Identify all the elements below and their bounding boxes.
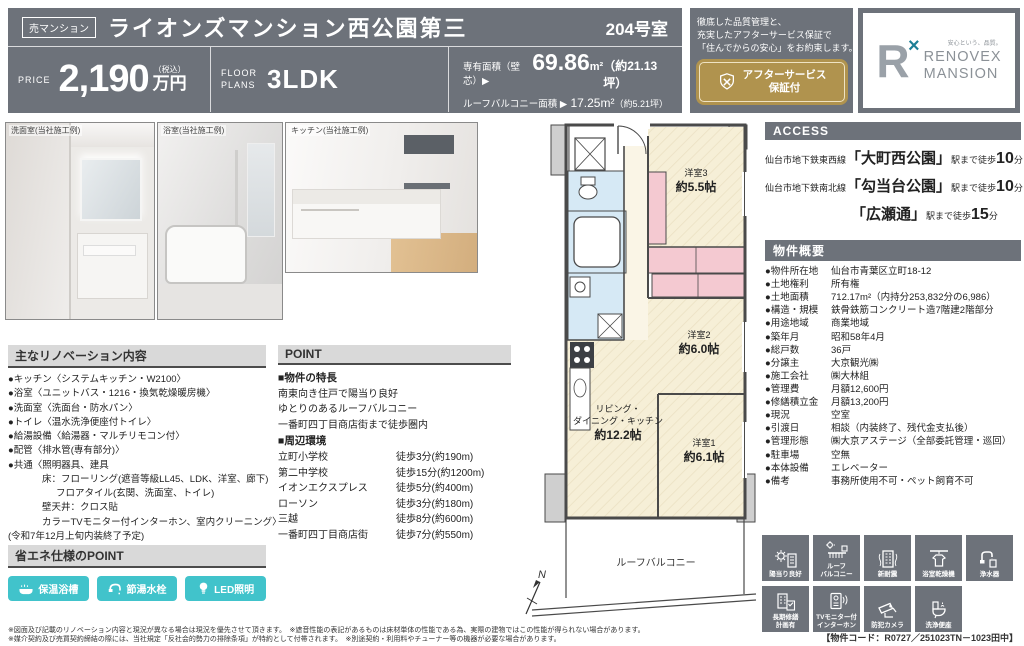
- overview-row: ●管理費月額12,600円: [765, 383, 1021, 396]
- bathroom-photo: 浴室(当社施工例): [157, 122, 283, 320]
- place-distance: 徒歩3分(約190m): [396, 450, 473, 466]
- faucet-icon: [108, 582, 123, 596]
- environment-row: 立町小学校徒歩3分(約190m): [278, 450, 511, 466]
- walk-minutes: 15: [971, 206, 989, 224]
- place-name: イオンエクスプレス: [278, 481, 396, 497]
- eco-section-header: 省エネ仕様のPOINT: [8, 545, 266, 568]
- washroom-photo: 洗面室(当社施工例): [5, 122, 155, 320]
- floor-plan: N 洋室3 約5.5帖 洋室2 約6.0帖 洋室1 約6.1帖 リビング・ ダイ…: [518, 116, 758, 624]
- place-distance: 徒歩7分(約550m): [396, 528, 473, 544]
- renovation-item: ●洗面室〈洗面台・防水パン〉: [8, 402, 266, 416]
- eco-badge-label: 節湯水栓: [127, 581, 167, 596]
- overview-row: ●土地面積712.17m²（内持分253,832分の6,986）: [765, 291, 1021, 304]
- renovation-item: 床：フローリング(遮音等級LL45、LDK、洋室、廊下): [8, 473, 266, 487]
- overview-row: ●引渡日相談（内装終了、残代金支払後）: [765, 422, 1021, 435]
- sale-type-badge: 売マンション: [22, 17, 96, 38]
- eco-badge-bathtub: 保温浴槽: [8, 576, 89, 601]
- plan-label-2: PLANS: [221, 80, 256, 90]
- area-value: 69.86: [532, 49, 590, 76]
- overview-section-header: 物件概要: [765, 240, 1021, 261]
- feature-tile-water-purifier: 浄水器: [966, 535, 1013, 581]
- feature-item: 一番町四丁目商店街まで徒歩圏内: [278, 418, 511, 434]
- point-list: ■物件の特長 南東向き住戸で陽当り良好 ゆとりのあるルーフバルコニー 一番町四丁…: [278, 365, 511, 543]
- area-tsubo: （約21.13坪）: [603, 57, 668, 91]
- feature-icons-grid: 陽当り良好 ルーフ バルコニー 新耐震: [762, 535, 1022, 637]
- header-title-row: 売マンション ライオンズマンション西公園第三 204号室: [8, 8, 682, 47]
- ldk-label-2: ダイニング・キッチン: [573, 415, 663, 426]
- point-section: POINT ■物件の特長 南東向き住戸で陽当り良好 ゆとりのあるルーフバルコニー…: [278, 345, 511, 543]
- renovation-item: ●共通〈照明器具、建具: [8, 459, 266, 473]
- access-line: 仙台市地下鉄南北線「勾当台公園」駅まで徒歩10分: [765, 175, 1021, 196]
- feature-tile-tv-intercom: TVモニター付 インターホン: [813, 586, 860, 632]
- property-overview-section: 物件概要 ●物件所在地仙台市青葉区立町18-12 ●土地権利所有権 ●土地面積7…: [765, 240, 1021, 488]
- renovation-item: ●配管〈排水管(専有部分)〉: [8, 444, 266, 458]
- feature-item: ゆとりのあるルーフバルコニー: [278, 402, 511, 418]
- room2-size: 約6.0帖: [679, 341, 720, 356]
- washroom-photo-caption: 洗面室(当社施工例): [9, 125, 82, 136]
- overview-row: ●用途地域商業地域: [765, 317, 1021, 330]
- disclaimer-line-2: ※媒介契約及び売買契約締結の際には、当社規定「反社会的勢力の排除条項」が特約とし…: [8, 635, 738, 644]
- rail-line: 仙台市地下鉄東西線: [765, 153, 846, 166]
- feature-tile-sunny: 陽当り良好: [762, 535, 809, 581]
- flyer-canvas: 売マンション ライオンズマンション西公園第三 204号室 PRICE 2,190…: [0, 0, 1024, 646]
- overview-row: ●総戸数36戸: [765, 344, 1021, 357]
- bathtub-icon: [18, 582, 34, 596]
- room3-size: 約5.5帖: [676, 179, 717, 194]
- eco-badge-label: LED照明: [214, 581, 254, 596]
- area-unit: m²: [590, 61, 603, 73]
- feature-tile-bath-dryer: 浴室乾燥機: [915, 535, 962, 581]
- room-number: 204号室: [606, 15, 668, 40]
- header-main: 売マンション ライオンズマンション西公園第三 204号室 PRICE 2,190…: [8, 8, 682, 113]
- logo-r-letter: R: [876, 35, 909, 87]
- balcony-area-label: ルーフバルコニー面積 ▶: [463, 96, 567, 110]
- overview-row: ●築年月昭和58年4月: [765, 331, 1021, 344]
- place-distance: 徒歩15分(約1200m): [396, 466, 484, 482]
- feature-title: ■物件の特長: [278, 370, 511, 387]
- eco-section: 省エネ仕様のPOINT 保温浴槽 節湯水栓: [8, 545, 266, 601]
- walk-minutes: 10: [996, 150, 1014, 168]
- rail-line: 仙台市地下鉄南北線: [765, 181, 846, 194]
- overview-row: ●現況空室: [765, 409, 1021, 422]
- access-section-header: ACCESS: [765, 122, 1021, 140]
- price-value: 2,190: [59, 58, 149, 101]
- kitchen-photo: キッチン(当社施工例): [285, 122, 478, 273]
- walk-minutes: 10: [996, 178, 1014, 196]
- renovation-item: ●トイレ〈温水洗浄便座付トイレ〉: [8, 416, 266, 430]
- eco-badge-faucet: 節湯水栓: [97, 576, 178, 601]
- environment-row: 第二中学校徒歩15分(約1200m): [278, 466, 511, 482]
- compass-label: N: [538, 569, 546, 581]
- place-distance: 徒歩3分(約180m): [396, 497, 473, 513]
- kitchen-photo-caption: キッチン(当社施工例): [289, 125, 370, 136]
- floor-plan-drawing: N 洋室3 約5.5帖 洋室2 約6.0帖 洋室1 約6.1帖 リビング・ ダイ…: [518, 116, 758, 624]
- property-code: 【物件コード：R0727／251023TN－1023田中】: [821, 631, 1018, 644]
- security-camera-icon: [876, 599, 900, 621]
- place-name: ローソン: [278, 497, 396, 513]
- renovex-logo: R× 安心という、品質。 RENOVEX MANSION: [863, 13, 1015, 108]
- feature-tile-earthquake: 新耐震: [864, 535, 911, 581]
- environment-row: ローソン徒歩3分(約180m): [278, 497, 511, 513]
- place-name: 立町小学校: [278, 450, 396, 466]
- page-title: ライオンズマンション西公園第三: [108, 11, 468, 43]
- eco-badge-led: LED照明: [185, 576, 266, 601]
- light-bulb-icon: [197, 581, 210, 596]
- price-unit: 万円: [153, 75, 187, 94]
- room1-label: 洋室1: [692, 437, 715, 448]
- building-icon: [876, 548, 900, 570]
- overview-row: ●管理形態㈱大京アステージ（全部委託管理・巡回）: [765, 435, 1021, 448]
- renovation-section: 主なリノベーション内容 ●キッチン〈システムキッチン・W2100〉 ●浴室〈ユニ…: [8, 345, 266, 544]
- price-cell: PRICE 2,190 （税込） 万円: [8, 47, 210, 112]
- washlet-icon: [927, 599, 951, 621]
- renovation-item: カラーTVモニター付インターホン、室内クリーニング〉: [8, 516, 266, 530]
- renovation-item: ●キッチン〈システムキッチン・W2100〉: [8, 373, 266, 387]
- logo-name-1: RENOVEX: [924, 49, 1002, 66]
- point-section-header: POINT: [278, 345, 511, 365]
- renovation-item: フロアタイル(玄関、洗面室、トイレ): [8, 487, 266, 501]
- environment-title: ■周辺環境: [278, 433, 511, 450]
- place-name: 一番町四丁目商店街: [278, 528, 396, 544]
- after-service-line-2: 保証付: [769, 82, 801, 94]
- bath-dryer-icon: [927, 548, 951, 570]
- logo-x-mark: ×: [908, 36, 920, 56]
- tv-intercom-icon: [825, 591, 849, 613]
- promo-line-2: 充実したアフターサービス保証で: [697, 29, 846, 42]
- access-line: 仙台市地下鉄東西線「大町西公園」駅まで徒歩10分: [765, 147, 1021, 168]
- renovation-list: ●キッチン〈システムキッチン・W2100〉 ●浴室〈ユニットバス・1216・換気…: [8, 368, 266, 544]
- promo-line-1: 徹底した品質管理と、: [697, 16, 846, 29]
- feature-tile-security-camera: 防犯カメラ: [864, 586, 911, 632]
- station-name: 「大町西公園」: [846, 147, 951, 168]
- overview-row: ●施工会社㈱大林組: [765, 370, 1021, 383]
- compass-north: N: [526, 569, 546, 614]
- header-price-row: PRICE 2,190 （税込） 万円 FLOOR PLANS 3LDK 専有面…: [8, 47, 682, 112]
- eco-badge-label: 保温浴槽: [38, 581, 78, 596]
- environment-row: イオンエクスプレス徒歩5分(約400m): [278, 481, 511, 497]
- overview-row: ●物件所在地仙台市青葉区立町18-12: [765, 265, 1021, 278]
- logo-name-2: MANSION: [924, 66, 1002, 83]
- feature-tile-repair-plan: 長期修繕 計画有: [762, 586, 809, 632]
- station-name: 「広瀬通」: [851, 203, 926, 224]
- feature-tile-washlet: 洗浄便座: [915, 586, 962, 632]
- after-service-badge: アフターサービス 保証付: [699, 62, 845, 102]
- overview-row: ●分譲主大京観光㈱: [765, 357, 1021, 370]
- balcony-area-tsubo: （約5.21坪）: [614, 97, 668, 110]
- building-document-icon: [774, 591, 798, 613]
- environment-row: 一番町四丁目商店街徒歩7分(約550m): [278, 528, 511, 544]
- area-cell: 専有面積（壁芯）▶ 69.86 m² （約21.13坪） ルーフバルコニー面積 …: [448, 47, 682, 112]
- water-purifier-icon: [978, 548, 1002, 570]
- overview-row: ●駐車場空無: [765, 449, 1021, 462]
- room3-label: 洋室3: [684, 167, 707, 178]
- plan-value: 3LDK: [267, 64, 339, 95]
- roof-balcony-label: ルーフバルコニー: [616, 557, 695, 569]
- renovation-section-header: 主なリノベーション内容: [8, 345, 266, 368]
- promo-line-3: 「住んでからの安心」をお約束します。: [697, 42, 846, 55]
- environment-row: 三越徒歩8分(約600m): [278, 512, 511, 528]
- feature-item: 南東向き住戸で陽当り良好: [278, 387, 511, 403]
- eco-badges: 保温浴槽 節湯水栓 LED照明: [8, 576, 266, 601]
- renovation-item: ●浴室〈ユニットバス・1216・換気乾燥暖房機〉: [8, 387, 266, 401]
- place-name: 三越: [278, 512, 396, 528]
- shield-tools-icon: [717, 72, 737, 92]
- station-name: 「勾当台公園」: [846, 175, 951, 196]
- area-label: 専有面積（壁芯）▶: [463, 59, 532, 87]
- price-label: PRICE: [18, 75, 51, 85]
- overview-row: ●備考事務所使用不可・ペット飼育不可: [765, 475, 1021, 488]
- floorplan-cell: FLOOR PLANS 3LDK: [210, 47, 448, 112]
- renovation-item: 壁天井：クロス貼: [8, 501, 266, 515]
- sun-building-icon: [774, 548, 798, 570]
- ldk-size: 約12.2帖: [594, 427, 641, 442]
- overview-row: ●本体設備エレベーター: [765, 462, 1021, 475]
- overview-row: ●構造・規模鉄骨鉄筋コンクリート造7階建2階部分: [765, 304, 1021, 317]
- renovation-item: ●給湯設備〈給湯器・マルチリモコン付〉: [8, 430, 266, 444]
- after-service-line-1: アフターサービス: [743, 69, 827, 81]
- room1-size: 約6.1帖: [684, 449, 725, 464]
- room2-label: 洋室2: [687, 329, 710, 340]
- disclaimer: ※図面及び記載のリノベーション内容と現況が異なる場合は現況を優先させて頂きます。…: [8, 626, 738, 645]
- balcony-area-value: 17.25m²: [570, 96, 614, 110]
- plan-label-1: FLOOR: [221, 68, 257, 78]
- place-distance: 徒歩5分(約400m): [396, 481, 473, 497]
- place-distance: 徒歩8分(約600m): [396, 512, 473, 528]
- overview-list: ●物件所在地仙台市青葉区立町18-12 ●土地権利所有権 ●土地面積712.17…: [765, 261, 1021, 488]
- feature-tile-roof-balcony: ルーフ バルコニー: [813, 535, 860, 581]
- place-name: 第二中学校: [278, 466, 396, 482]
- overview-row: ●修繕積立金月額13,200円: [765, 396, 1021, 409]
- access-line: 「広瀬通」駅まで徒歩15分: [765, 203, 1021, 224]
- disclaimer-line-1: ※図面及び記載のリノベーション内容と現況が異なる場合は現況を優先させて頂きます。…: [8, 626, 738, 635]
- access-section: ACCESS 仙台市地下鉄東西線「大町西公園」駅まで徒歩10分 仙台市地下鉄南北…: [765, 122, 1021, 224]
- logo-tagline: 安心という、品質。: [924, 38, 1002, 47]
- header-logo-panel: R× 安心という、品質。 RENOVEX MANSION: [858, 8, 1020, 113]
- bathroom-photo-caption: 浴室(当社施工例): [161, 125, 226, 136]
- renovation-item: (令和7年12月上旬内装終了予定): [8, 530, 266, 544]
- overview-row: ●土地権利所有権: [765, 278, 1021, 291]
- header-promo: 徹底した品質管理と、 充実したアフターサービス保証で 「住んでからの安心」をお約…: [690, 8, 853, 113]
- ldk-label-1: リビング・: [595, 403, 640, 414]
- roof-balcony-icon: [825, 540, 849, 562]
